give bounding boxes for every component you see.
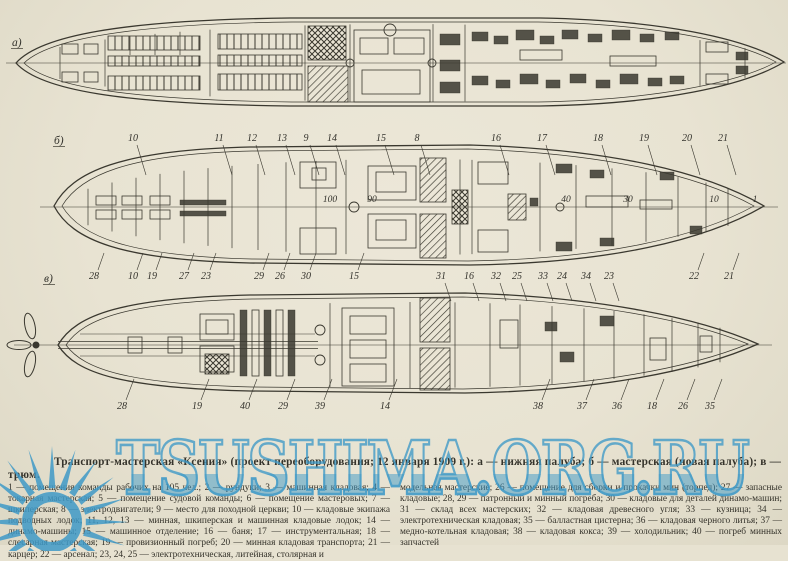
compartment-rect (205, 354, 229, 374)
compartment-rect (394, 38, 424, 54)
compartment-rect (354, 30, 430, 102)
callout-number: 22 (689, 271, 699, 282)
fitting-rect (440, 60, 460, 71)
frame-number: 100 (323, 195, 338, 205)
leader-line (310, 145, 319, 175)
compartment-rect (586, 196, 628, 207)
leader-line (324, 379, 332, 400)
frame-number: 40 (561, 195, 571, 205)
compartment-rect (122, 196, 142, 205)
frame-number: 30 (622, 195, 633, 205)
callout-number: 35 (704, 401, 715, 412)
compartment-rect (96, 210, 116, 219)
callout-number: 12 (247, 133, 257, 144)
frame-number: 1 (753, 195, 758, 205)
compartment-rect (368, 214, 416, 248)
callout-number: 30 (300, 271, 311, 282)
compartment-rect (420, 298, 450, 342)
callout-number: 27 (179, 271, 190, 282)
callout-number: 32 (490, 271, 501, 282)
compartment-rect (376, 220, 406, 240)
leader-line (137, 253, 143, 270)
callout-number: 29 (278, 401, 288, 412)
callout-number: 9 (304, 133, 309, 144)
propeller-blade (22, 350, 37, 378)
callout-number: 18 (593, 133, 603, 144)
compartment-rect (500, 320, 518, 348)
compartment-rect (84, 72, 98, 82)
fitting-rect (472, 32, 488, 41)
fitting-rect (640, 34, 654, 42)
callout-number: 15 (349, 271, 359, 282)
fitting-rect (648, 78, 662, 86)
propeller-blade (22, 312, 37, 340)
leader-line (698, 253, 704, 270)
subfigure-label: а) (12, 37, 22, 49)
callout-number: 25 (512, 271, 522, 282)
callout-number: 20 (682, 133, 692, 144)
leader-line (613, 283, 619, 301)
fitting-rect (660, 172, 674, 180)
compartment-rect (62, 44, 78, 54)
callout-number: 13 (277, 133, 287, 144)
caption-column-left: 1 — помещения команды рабочих на 105 чел… (8, 483, 390, 561)
callout-number: 34 (580, 271, 591, 282)
compartment-rect (108, 36, 200, 50)
leader-line (656, 379, 664, 400)
fitting-rect (530, 198, 538, 206)
callout-number: 38 (532, 401, 543, 412)
compartment-rect (362, 70, 420, 94)
compartment-rect (478, 162, 508, 184)
callout-number: 37 (576, 401, 588, 412)
callout-number: 40 (240, 401, 250, 412)
caption-columns: 1 — помещения команды рабочих на 105 чел… (8, 483, 782, 561)
fitting-rect (516, 30, 534, 40)
compartment-rect (108, 56, 200, 66)
callout-number: 16 (464, 271, 474, 282)
leader-line (687, 379, 695, 400)
callout-number: 8 (415, 133, 420, 144)
compartment-rect (360, 38, 388, 54)
leader-line (284, 253, 290, 270)
fitting-rect (180, 211, 226, 216)
fitting-rect (440, 82, 460, 93)
fitting-rect (496, 80, 510, 88)
leader-line (566, 283, 572, 301)
callout-number: 10 (128, 133, 138, 144)
fitting-rect (590, 170, 604, 178)
compartment-rect (452, 190, 468, 224)
mast-circle (315, 325, 325, 335)
callout-number: 14 (327, 133, 337, 144)
callout-number: 28 (89, 271, 99, 282)
fitting-rect (736, 52, 748, 60)
callout-number: 14 (380, 401, 390, 412)
leader-line (389, 379, 397, 400)
fitting-rect (288, 310, 295, 376)
leader-line (98, 253, 104, 270)
fitting-rect (736, 66, 748, 74)
compartment-rect (300, 162, 336, 188)
callout-number: 19 (147, 271, 157, 282)
compartment-rect (650, 338, 666, 360)
leader-line (263, 253, 269, 270)
compartment-rect (350, 364, 386, 382)
leader-line (126, 379, 134, 400)
leader-line (733, 253, 739, 270)
compartment-rect (700, 336, 712, 352)
callout-number: 24 (557, 271, 567, 282)
fitting-rect (562, 30, 578, 39)
callout-number: 16 (491, 133, 501, 144)
callout-number: 29 (254, 271, 264, 282)
compartment-rect (420, 158, 446, 202)
callout-number: 26 (275, 271, 285, 282)
leader-line (310, 253, 316, 270)
leader-line (590, 283, 596, 301)
callout-number: 23 (604, 271, 614, 282)
callout-number: 17 (537, 133, 548, 144)
callout-number: 26 (678, 401, 688, 412)
leader-line (287, 379, 295, 400)
leader-line (586, 379, 594, 400)
ship-plans-figure: 1011121391415816171819202128101927232926… (0, 0, 788, 452)
leader-line (223, 145, 232, 175)
fitting-rect (570, 74, 586, 83)
fitting-rect (560, 352, 574, 362)
fitting-rect (494, 36, 508, 44)
leader-line (473, 283, 479, 301)
fitting-rect (670, 76, 684, 84)
subfigure-label: в) (44, 273, 53, 285)
compartment-rect (376, 172, 406, 192)
callout-number: 21 (718, 133, 728, 144)
compartment-rect (252, 310, 259, 376)
callout-number: 15 (376, 133, 386, 144)
callout-number: 11 (214, 133, 223, 144)
compartment-rect (84, 44, 98, 54)
leader-line (358, 253, 364, 270)
fitting-rect (540, 36, 554, 44)
fitting-rect (180, 200, 226, 205)
fitting-rect (612, 30, 630, 40)
subfigure-label: б) (54, 135, 64, 147)
callout-number: 10 (128, 271, 138, 282)
fitting-rect (472, 76, 488, 85)
leader-line (500, 145, 509, 175)
compartment-rect (108, 76, 200, 90)
fitting-rect (600, 316, 614, 326)
scanned-page: 1011121391415816171819202128101927232926… (0, 0, 788, 545)
leader-line (249, 379, 257, 400)
fitting-rect (264, 310, 271, 376)
compartment-rect (122, 210, 142, 219)
compartment-rect (276, 310, 283, 376)
fitting-rect (240, 310, 247, 376)
compartment-rect (520, 50, 562, 60)
leader-line (691, 145, 700, 175)
callout-number: 36 (611, 401, 622, 412)
compartment-rect (62, 72, 78, 82)
fitting-rect (545, 322, 557, 331)
fitting-rect (556, 164, 572, 173)
callout-number: 33 (537, 271, 548, 282)
mast-circle (315, 355, 325, 365)
fitting-rect (665, 32, 679, 40)
compartment-rect (420, 214, 446, 258)
leader-line (137, 145, 146, 175)
propeller-hub (33, 342, 40, 349)
compartment-rect (200, 314, 234, 340)
leader-line (521, 283, 527, 301)
compartment-rect (640, 200, 672, 209)
frame-number: 90 (367, 195, 377, 205)
callout-number: 28 (117, 401, 127, 412)
fitting-rect (600, 238, 614, 246)
compartment-rect (218, 34, 302, 49)
callout-number: 19 (192, 401, 202, 412)
compartment-rect (218, 74, 302, 90)
fitting-rect (620, 74, 638, 84)
callout-number: 31 (435, 271, 446, 282)
caption-column-right: модельная мастерские; 26 — помещение для… (400, 483, 782, 561)
fitting-rect (440, 34, 460, 45)
compartment-rect (206, 320, 228, 334)
fitting-rect (690, 226, 702, 234)
compartment-rect (350, 340, 386, 358)
leader-line (286, 145, 295, 175)
compartment-rect (350, 316, 386, 334)
fitting-rect (556, 242, 572, 251)
callout-number: 21 (724, 271, 734, 282)
fitting-rect (596, 80, 610, 88)
callout-number: 19 (639, 133, 649, 144)
caption-title: Транспорт-мастерская «Ксения» (проект пе… (8, 456, 782, 482)
compartment-rect (308, 66, 348, 102)
callout-number: 18 (647, 401, 657, 412)
leader-line (256, 145, 265, 175)
callout-number: 39 (314, 401, 325, 412)
compartment-rect (218, 55, 302, 66)
leader-line (336, 145, 345, 175)
fitting-rect (588, 34, 602, 42)
hull-outline (58, 293, 758, 393)
compartment-rect (610, 56, 656, 66)
compartment-rect (478, 230, 508, 252)
leader-line (621, 379, 629, 400)
leader-line (648, 145, 657, 175)
callout-number: 23 (201, 271, 211, 282)
frame-number: 10 (709, 195, 719, 205)
compartment-rect (96, 196, 116, 205)
compartment-rect (308, 26, 346, 60)
compartment-rect (508, 194, 526, 220)
compartment-rect (420, 348, 450, 390)
fitting-rect (520, 74, 538, 84)
fitting-rect (546, 80, 560, 88)
leader-line (727, 145, 736, 175)
compartment-rect (300, 228, 336, 254)
leader-line (714, 379, 722, 400)
